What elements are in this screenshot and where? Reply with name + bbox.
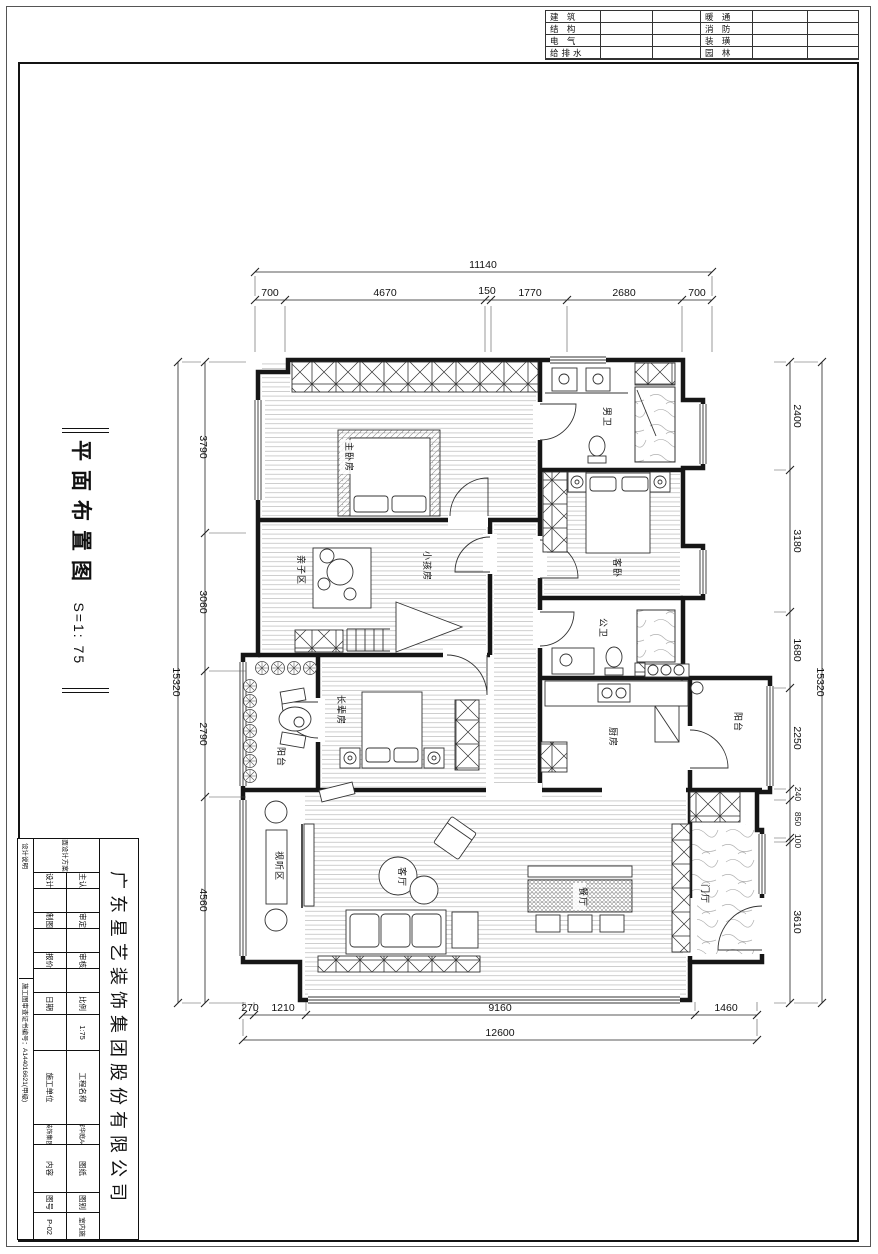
discipline-label: 暖 通 [701, 11, 753, 23]
builder-value: 广东星艺装饰集团有限公司 [33, 1125, 66, 1145]
room-label-bath-men: 男卫 [602, 407, 612, 427]
strip-note: 设计说明 [19, 839, 33, 979]
sheet-scale-text: S=1: 75 [71, 602, 87, 665]
content-label: 内容 [33, 1145, 66, 1193]
pillow [354, 496, 388, 512]
draft-label: 制图 [33, 913, 66, 929]
svg-text:4560: 4560 [197, 888, 209, 912]
svg-text:850: 850 [793, 812, 803, 826]
svg-text:100: 100 [793, 834, 803, 848]
svg-text:2680: 2680 [612, 287, 636, 299]
svg-text:240: 240 [793, 787, 803, 801]
chair [536, 915, 560, 932]
sofa-cushion [412, 914, 441, 947]
svg-text:9160: 9160 [488, 1002, 512, 1014]
svg-text:1770: 1770 [518, 287, 542, 299]
room-label-elder: 长辈房 [336, 695, 347, 725]
svg-text:2250: 2250 [791, 726, 803, 750]
speaker [265, 801, 287, 823]
approve-label: 审定 [66, 913, 99, 929]
check-label: 审核 [66, 953, 99, 969]
pillow [366, 748, 390, 762]
chair [600, 915, 624, 932]
scale-value: 1:75 [66, 1015, 99, 1051]
pillow [394, 748, 418, 762]
design-label: 设计 [33, 873, 66, 889]
sofa-cushion [350, 914, 379, 947]
pillow [590, 477, 616, 491]
bench [528, 866, 632, 877]
room-label-guest: 客卧 [612, 558, 623, 578]
svg-text:1680: 1680 [791, 638, 803, 662]
sheet-title-text: 平面布置图 [69, 440, 92, 590]
discipline-label: 给排水 [546, 47, 601, 59]
vanity [552, 648, 594, 674]
discipline-label: 电 气 [546, 35, 601, 47]
floor-plan: 主卧房 男卫 客卧 小孩房 亲子区 公卫 长辈房 阳台 厨房 阳台 视听区 客厅… [150, 258, 842, 1050]
svg-text:4670: 4670 [373, 287, 397, 299]
svg-text:2400: 2400 [791, 404, 803, 428]
toilet [606, 647, 622, 667]
discipline-table: 建 筑 暖 通 结 构 消 防 电 气 装 璜 给排水 园 林 [545, 10, 859, 60]
dim-right-total: 15320 [814, 667, 826, 696]
builder-label: 施工单位 [33, 1051, 66, 1125]
dim-left-total: 15320 [170, 667, 182, 696]
speaker [265, 909, 287, 931]
content-value: 平面设计方案二 [33, 839, 99, 873]
room-label-family: 亲子区 [296, 555, 307, 585]
strip-cert: 施工图审查证书编号：A144016621(甲级) [19, 979, 33, 1241]
title-rule [62, 432, 109, 433]
toilet [589, 436, 605, 456]
room-label-bath-pub: 公卫 [598, 618, 608, 638]
svg-text:3610: 3610 [791, 910, 803, 934]
svg-text:3180: 3180 [791, 529, 803, 553]
title-rule [62, 688, 109, 689]
washer [691, 682, 703, 694]
svg-text:2790: 2790 [197, 722, 209, 746]
pillow [392, 496, 426, 512]
sheet-label: 图纸 [66, 1145, 99, 1193]
svg-text:150: 150 [478, 285, 496, 297]
svg-text:700: 700 [688, 287, 706, 299]
title-block: 广东星艺装饰集团股份有限公司 业主认可 审定 审核 比例 1:75 工程名称 中… [17, 838, 139, 1240]
discipline-label: 装 璜 [701, 35, 753, 47]
room-label-foyer: 门厅 [700, 884, 711, 904]
svg-text:1210: 1210 [271, 1002, 295, 1014]
room-label-balcony-right: 阳台 [733, 712, 744, 732]
no-label: 图号 [33, 1193, 66, 1213]
sheet-title: 平面布置图 S=1: 75 [67, 440, 97, 665]
discipline-label: 消 防 [701, 23, 753, 35]
side-table [452, 912, 478, 948]
room-label-balcony-left: 阳台 [276, 747, 287, 767]
no-value: P-02 [33, 1213, 66, 1241]
room-label-master: 主卧房 [344, 442, 355, 472]
tv-cabinet [304, 824, 314, 906]
cat-label: 图别 [66, 1193, 99, 1213]
svg-text:3790: 3790 [197, 435, 209, 459]
room-label-living: 客厅 [397, 867, 408, 887]
discipline-label: 园 林 [701, 47, 753, 59]
svg-text:700: 700 [261, 287, 279, 299]
svg-text:1460: 1460 [714, 1002, 738, 1014]
room-label-kitchen: 厨房 [608, 727, 619, 747]
discipline-label: 建 筑 [546, 11, 601, 23]
title-block-grid: 业主认可 审定 审核 比例 1:75 工程名称 中海锦辉华庭A4栋3201 图纸… [33, 839, 99, 1239]
drawing-sheet: 建 筑 暖 通 结 构 消 防 电 气 装 璜 给排水 园 林 平面布置图 S=… [0, 0, 878, 1254]
title-rule [62, 428, 109, 429]
date-label: 日期 [33, 993, 66, 1015]
room-label-kids: 小孩房 [422, 551, 433, 581]
dim-top-total: 11140 [469, 259, 497, 271]
coffee-table [410, 876, 438, 904]
quote-label: 报价 [33, 953, 66, 969]
project-value: 中海锦辉华庭A4栋3201 [66, 1125, 99, 1145]
owner-label: 业主认可 [66, 873, 99, 889]
title-block-strip: 设计说明 施工图审查证书编号：A144016621(甲级) [19, 839, 33, 1239]
room-label-dining: 餐厅 [578, 887, 589, 907]
company-name: 广东星艺装饰集团股份有限公司 [99, 839, 138, 1239]
pillow [622, 477, 648, 491]
project-label: 工程名称 [66, 1051, 99, 1125]
room-label-av: 视听区 [274, 851, 285, 881]
cat-value: 室内施 [66, 1213, 99, 1241]
scale-label: 比例 [66, 993, 99, 1015]
svg-text:3060: 3060 [197, 590, 209, 614]
discipline-label: 结 构 [546, 23, 601, 35]
chair [568, 915, 592, 932]
title-rule [62, 692, 109, 693]
sofa-cushion [381, 914, 410, 947]
dim-bottom-total: 12600 [485, 1027, 514, 1039]
svg-text:270: 270 [241, 1002, 259, 1014]
